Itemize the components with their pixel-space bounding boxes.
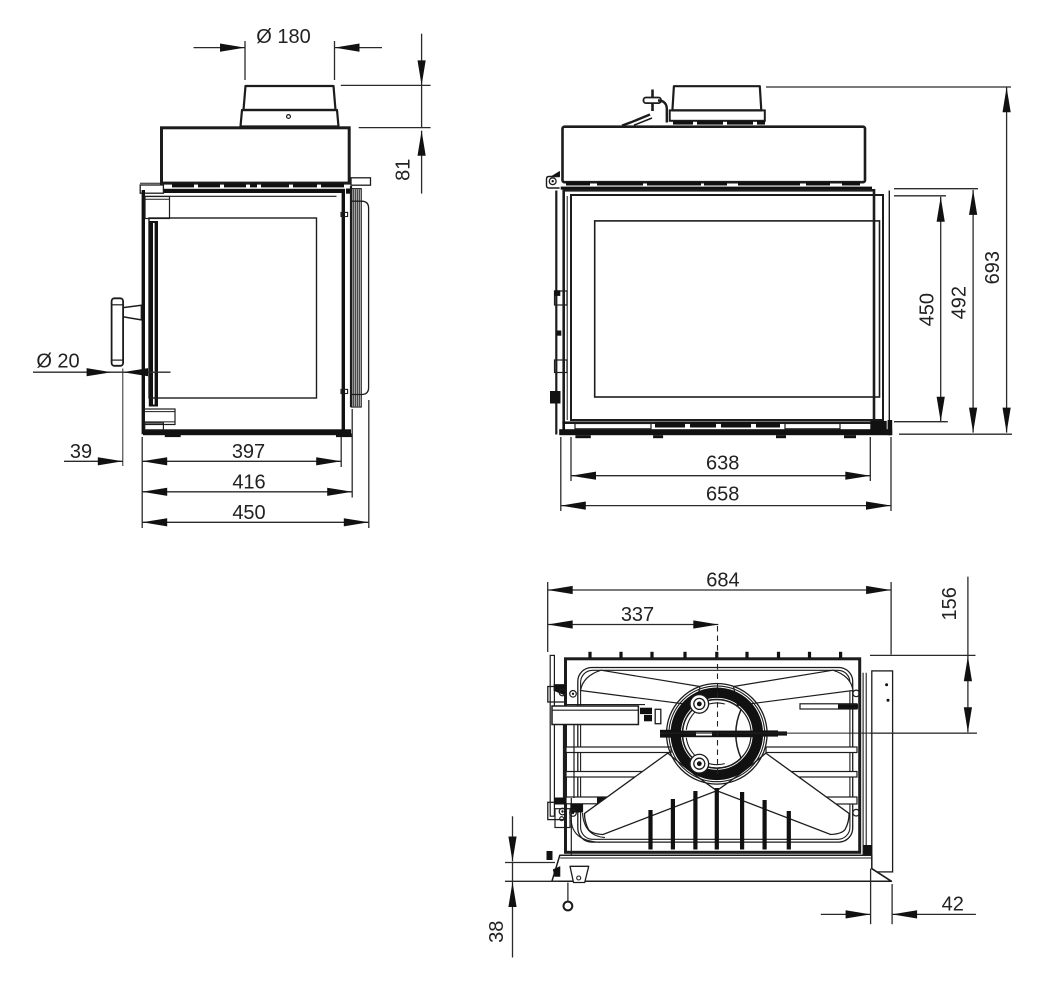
svg-text:693: 693 xyxy=(982,251,1004,284)
svg-text:38: 38 xyxy=(486,921,508,943)
svg-text:450: 450 xyxy=(917,293,939,326)
svg-text:81: 81 xyxy=(393,159,415,181)
svg-text:416: 416 xyxy=(232,472,265,494)
svg-text:Ø 180: Ø 180 xyxy=(256,26,310,48)
svg-text:684: 684 xyxy=(706,570,739,592)
svg-text:658: 658 xyxy=(706,483,739,505)
svg-text:492: 492 xyxy=(949,286,971,319)
svg-text:42: 42 xyxy=(942,893,964,915)
svg-text:39: 39 xyxy=(70,441,92,463)
svg-text:638: 638 xyxy=(706,453,739,475)
svg-text:337: 337 xyxy=(621,604,654,626)
svg-text:Ø 20: Ø 20 xyxy=(36,351,79,373)
svg-text:450: 450 xyxy=(232,502,265,524)
svg-text:156: 156 xyxy=(939,587,961,620)
svg-text:397: 397 xyxy=(232,441,265,463)
